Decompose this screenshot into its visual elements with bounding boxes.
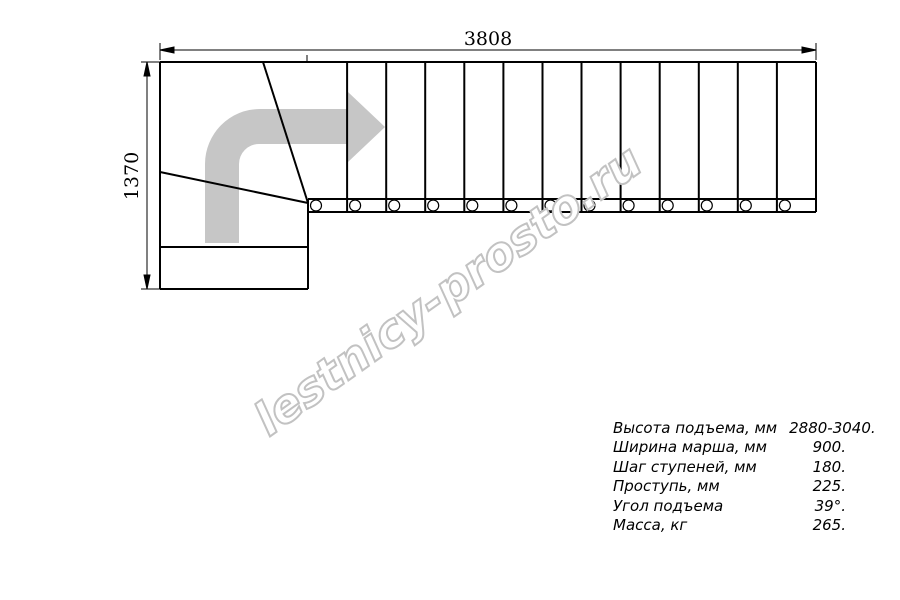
spec-label: Шаг ступеней, мм [613,458,757,477]
baluster-circle [623,200,634,211]
total-width-label: 1370 [121,152,143,200]
spec-row: Ширина марша, мм900. [613,438,846,457]
spec-value: 265. [813,516,846,535]
spec-label: Ширина марша, мм [613,438,767,457]
baluster-circle [701,200,712,211]
top-dimension: 3808 [160,28,816,60]
specs-table: Высота подъема, мм2880-3040.Ширина марша… [613,419,846,535]
direction-arrow [205,92,385,243]
spec-value: 180. [813,458,846,477]
baluster-circle [467,200,478,211]
baluster-circle [662,200,673,211]
spec-row: Высота подъема, мм2880-3040. [613,419,846,438]
spec-label: Проступь, мм [613,477,720,496]
spec-row: Шаг ступеней, мм180. [613,458,846,477]
dim-arrow-top [144,62,150,76]
total-length-label: 3808 [464,28,512,50]
spec-value: 225. [813,477,846,496]
baluster-circle [740,200,751,211]
spec-label: Масса, кг [613,516,687,535]
spec-value: 39°. [815,497,846,516]
dim-arrow-bottom [144,275,150,289]
baluster-circle [428,200,439,211]
dim-arrow-left [160,47,174,53]
spec-row: Проступь, мм225. [613,477,846,496]
baluster-circle [389,200,400,211]
spec-label: Угол подъема [613,497,723,516]
spec-value: 2880-3040. [789,419,876,438]
stair-drawing-page: 3808 1370 lestnicy-prosto.ru Высота подъ… [0,0,900,600]
spec-value: 900. [813,438,846,457]
spec-label: Высота подъема, мм [613,419,777,438]
dim-arrow-right [802,47,816,53]
spec-row: Масса, кг265. [613,516,846,535]
baluster-circle [350,200,361,211]
baluster-circle [311,200,322,211]
left-dimension: 1370 [121,62,160,289]
spec-row: Угол подъема39°. [613,497,846,516]
baluster-circle [779,200,790,211]
